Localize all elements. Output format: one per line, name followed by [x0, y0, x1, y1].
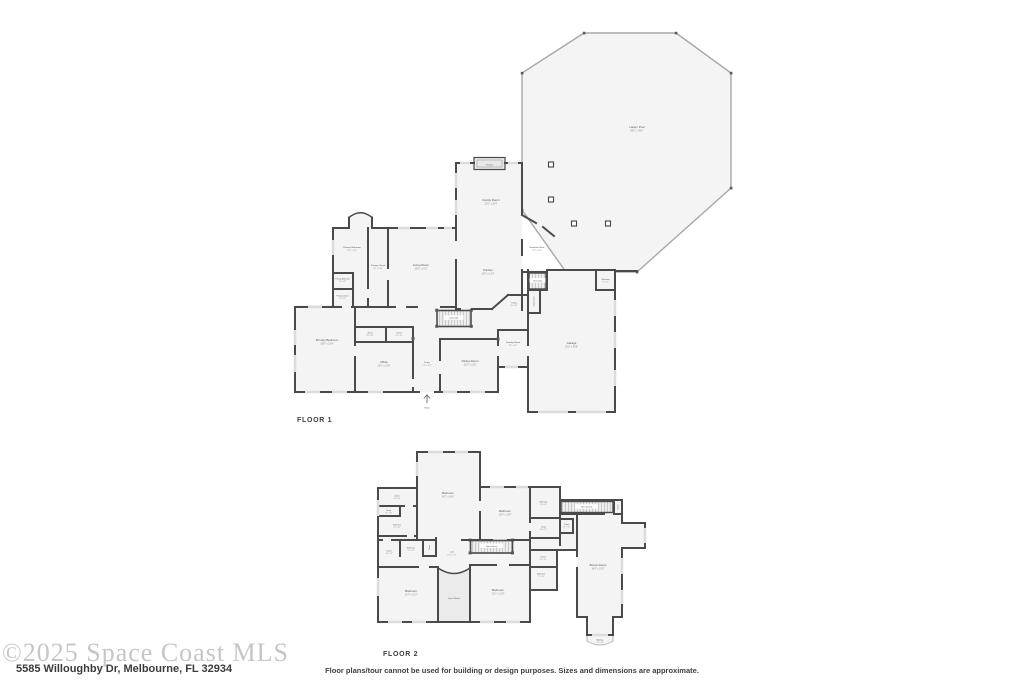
- room-label-bedroom-bl: Bedroom 13'4" x 12'2": [404, 589, 417, 596]
- room-label-f2-bathroom-3: Bathroom 5'2" x 6'2": [407, 547, 415, 553]
- room-name: Family Room: [482, 198, 500, 202]
- room-label-stairs-down-center: Stairs (Down): [480, 543, 503, 548]
- room-dims: 15'6" x 13'4": [481, 272, 494, 275]
- room-name: Laundry Room: [506, 341, 521, 344]
- room-name: Balcony: [597, 640, 603, 642]
- room-label-bedroom-br: Bedroom 13'2" x 12'4": [491, 588, 504, 595]
- floor2-title: FLOOR 2: [383, 651, 418, 658]
- room-dims: 7'4" x 12'6": [422, 365, 432, 367]
- room-dims: 13'2" x 12'4": [491, 592, 504, 595]
- room-dims: 8'4" x 7'6": [509, 345, 518, 347]
- room-label-dining-room: Dining Room 13'2" x 12'6": [462, 359, 479, 366]
- room-label-bonus-room: Bonus Room 16'4" x 22'6": [590, 563, 607, 570]
- room-name: Loft: [450, 551, 454, 554]
- room-dims: 11'8" x 10'2": [532, 250, 543, 252]
- room-name: Living Room: [413, 263, 430, 267]
- entry-arrow-icon: [424, 395, 430, 403]
- floorplan-page: Lanai / Pool 56'0" x 48'0" Fireplace Fam…: [0, 0, 1024, 683]
- room-name: Primary Bathroom: [343, 246, 361, 249]
- room-name: Closet: [386, 550, 392, 553]
- room-label-fireplace: Fireplace: [486, 165, 493, 167]
- room-dims: 6'4" x 5'2": [394, 527, 401, 529]
- room-label-living-room: Living Room 19'8" x 16'2": [413, 263, 430, 270]
- room-name: Stairs (Down): [486, 545, 497, 548]
- room-dims: 11'6" x 7'4": [447, 555, 457, 557]
- room-name: Stairs (Up): [533, 279, 542, 282]
- room-name: Primary Bedroom: [316, 338, 339, 342]
- room-name: Breakfast Nook: [530, 246, 546, 249]
- room-dims: 13'6" x 12'8": [377, 364, 390, 367]
- room-label-entry: Entry: [424, 407, 430, 410]
- room-label-stairs-down-right: Stairs (Down): [575, 504, 598, 509]
- room-name: Primary Closet: [337, 295, 349, 298]
- room-dims: 4'6" x 5'2": [511, 305, 518, 307]
- room-name: Bathroom: [393, 524, 401, 527]
- floor1-plan: Lanai / Pool 56'0" x 48'0" Fireplace Fam…: [295, 32, 732, 424]
- room-name: Primary Bathroom: [335, 278, 350, 281]
- room-label-bedroom-top: Bedroom 14'2" x 18'6": [441, 491, 454, 498]
- room-name: Bedroom: [492, 588, 504, 592]
- room-name: Bedroom: [405, 589, 417, 593]
- room-name: Utility Closet: [533, 296, 536, 306]
- room-label-family-room: Family Room 21'6" x 20'4": [482, 198, 500, 205]
- room-label-breakfast-nook: Breakfast Nook 11'8" x 10'2": [530, 246, 546, 252]
- room-dims: 13'2" x 12'6": [463, 363, 476, 366]
- room-dims: 5'2" x 6'2": [408, 550, 415, 552]
- room-name: Closet: [396, 332, 402, 335]
- room-dims: 7'2" x 5'4": [538, 576, 545, 578]
- room-dims: 4'2" x 3'6": [563, 527, 570, 529]
- room-dims: 6'4" x 4'2": [394, 498, 401, 500]
- room-label-f2-bathroom-2: Bathroom 5'6" x 8'2": [540, 501, 548, 507]
- room-label-utility-closet: Utility Closet: [533, 296, 536, 306]
- room-name: Open To Below: [448, 598, 461, 600]
- room-name: Closet: [367, 332, 373, 335]
- room-dims: 5'6" x 4'2": [540, 529, 547, 531]
- room-label-f2-bathroom-1: Bathroom 6'4" x 5'2": [393, 524, 401, 530]
- open-to-below-shape: [438, 568, 470, 622]
- room-name: Dining Room: [462, 359, 479, 363]
- room-name: Closet: [394, 495, 400, 498]
- room-name: Office: [380, 360, 388, 364]
- room-dims: 5'6" x 8'2": [540, 504, 547, 506]
- room-label-garage: Garage 25'0" x 29'6": [565, 341, 578, 348]
- room-name: Bedroom: [442, 491, 454, 495]
- room-name: Stairs (Down): [581, 506, 592, 509]
- room-dims: 7'0" x 3'2": [597, 642, 604, 644]
- floor2-plan: Bedroom 14'2" x 18'6" Closet 6'4" x 4'2"…: [378, 452, 645, 658]
- room-label-garage-bathroom: Bathroom 5'4" x 5'0": [602, 278, 610, 284]
- room-label-f2-closet-vert-mid: Closet: [428, 544, 431, 550]
- room-name: Closet: [564, 523, 570, 526]
- room-dims: 4'2" x 3'8": [396, 335, 403, 337]
- room-dims: 3'2" x 2'8": [385, 513, 392, 515]
- room-label-stairs-up-garage: Stairs (Up): [530, 278, 546, 283]
- room-dims: 56'0" x 48'0": [630, 129, 643, 132]
- room-name: Closet: [617, 504, 620, 510]
- room-dims: 16'4" x 22'6": [591, 567, 604, 570]
- room-label-f2-bathroom-4: Bathroom 7'2" x 5'4": [537, 573, 545, 579]
- room-name: Closet: [428, 544, 431, 550]
- room-name: Bonus Room: [590, 563, 607, 567]
- room-name: Pantry: [511, 302, 516, 305]
- room-name: Primary Closet: [371, 264, 386, 267]
- room-name: Closet: [386, 509, 392, 512]
- room-dims: 5'2" x 4'8": [339, 281, 346, 283]
- room-name: Closet: [540, 556, 546, 559]
- room-dims: 5'4" x 3'8": [540, 559, 547, 561]
- room-name: Bathroom: [540, 501, 548, 504]
- floorplan-canvas: Lanai / Pool 56'0" x 48'0" Fireplace Fam…: [0, 0, 1024, 683]
- room-dims: 13'4" x 12'2": [404, 593, 417, 596]
- room-dims: 5'2" x 5'6": [339, 298, 346, 300]
- room-dims: 4'8" x 6'2": [386, 553, 393, 555]
- room-dims: 25'0" x 29'6": [565, 345, 578, 348]
- room-name: Bathroom: [602, 278, 610, 281]
- room-name: Bedroom: [499, 509, 511, 513]
- room-label-lanai-pool: Lanai / Pool 56'0" x 48'0": [629, 125, 645, 132]
- room-name: Garage: [567, 341, 577, 345]
- floor1-title: FLOOR 1: [297, 417, 332, 424]
- room-dims: 14'2" x 18'6": [441, 495, 454, 498]
- room-label-stairs-up-main: Stairs (Up): [444, 315, 464, 320]
- room-dims: 12'2" x 11'6": [347, 250, 358, 252]
- room-name: Fireplace: [486, 165, 493, 167]
- room-dims: 12'4" x 11'6": [499, 513, 512, 516]
- room-name: Bathroom: [537, 573, 545, 576]
- room-label-bedroom-mid: Bedroom 12'4" x 11'6": [499, 509, 512, 516]
- disclaimer-text: Floor plans/tour cannot be used for buil…: [0, 666, 1024, 675]
- room-dims: 5'4" x 5'0": [602, 282, 609, 284]
- room-label-open-to-below: Open To Below: [448, 598, 461, 600]
- room-name: Closet: [541, 526, 547, 529]
- room-name: Bathroom: [407, 547, 415, 550]
- room-name: Foyer: [424, 361, 430, 364]
- room-dims: 19'8" x 16'2": [414, 267, 427, 270]
- room-dims: 4'2" x 3'8": [367, 335, 374, 337]
- room-name: Entry: [424, 407, 430, 410]
- room-label-kitchen: Kitchen 15'6" x 13'4": [481, 268, 494, 275]
- room-label-f2-closet-vert-right: Closet: [617, 504, 620, 510]
- fireplace: [474, 158, 505, 170]
- room-name: Stairs (Up): [449, 317, 458, 320]
- room-name: Kitchen: [483, 268, 493, 272]
- room-dims: 16'8" x 15'4": [320, 342, 333, 345]
- room-dims: 21'6" x 20'4": [484, 202, 497, 205]
- room-name: Lanai / Pool: [629, 125, 645, 129]
- room-dims: 6'8" x 13'4": [373, 268, 383, 270]
